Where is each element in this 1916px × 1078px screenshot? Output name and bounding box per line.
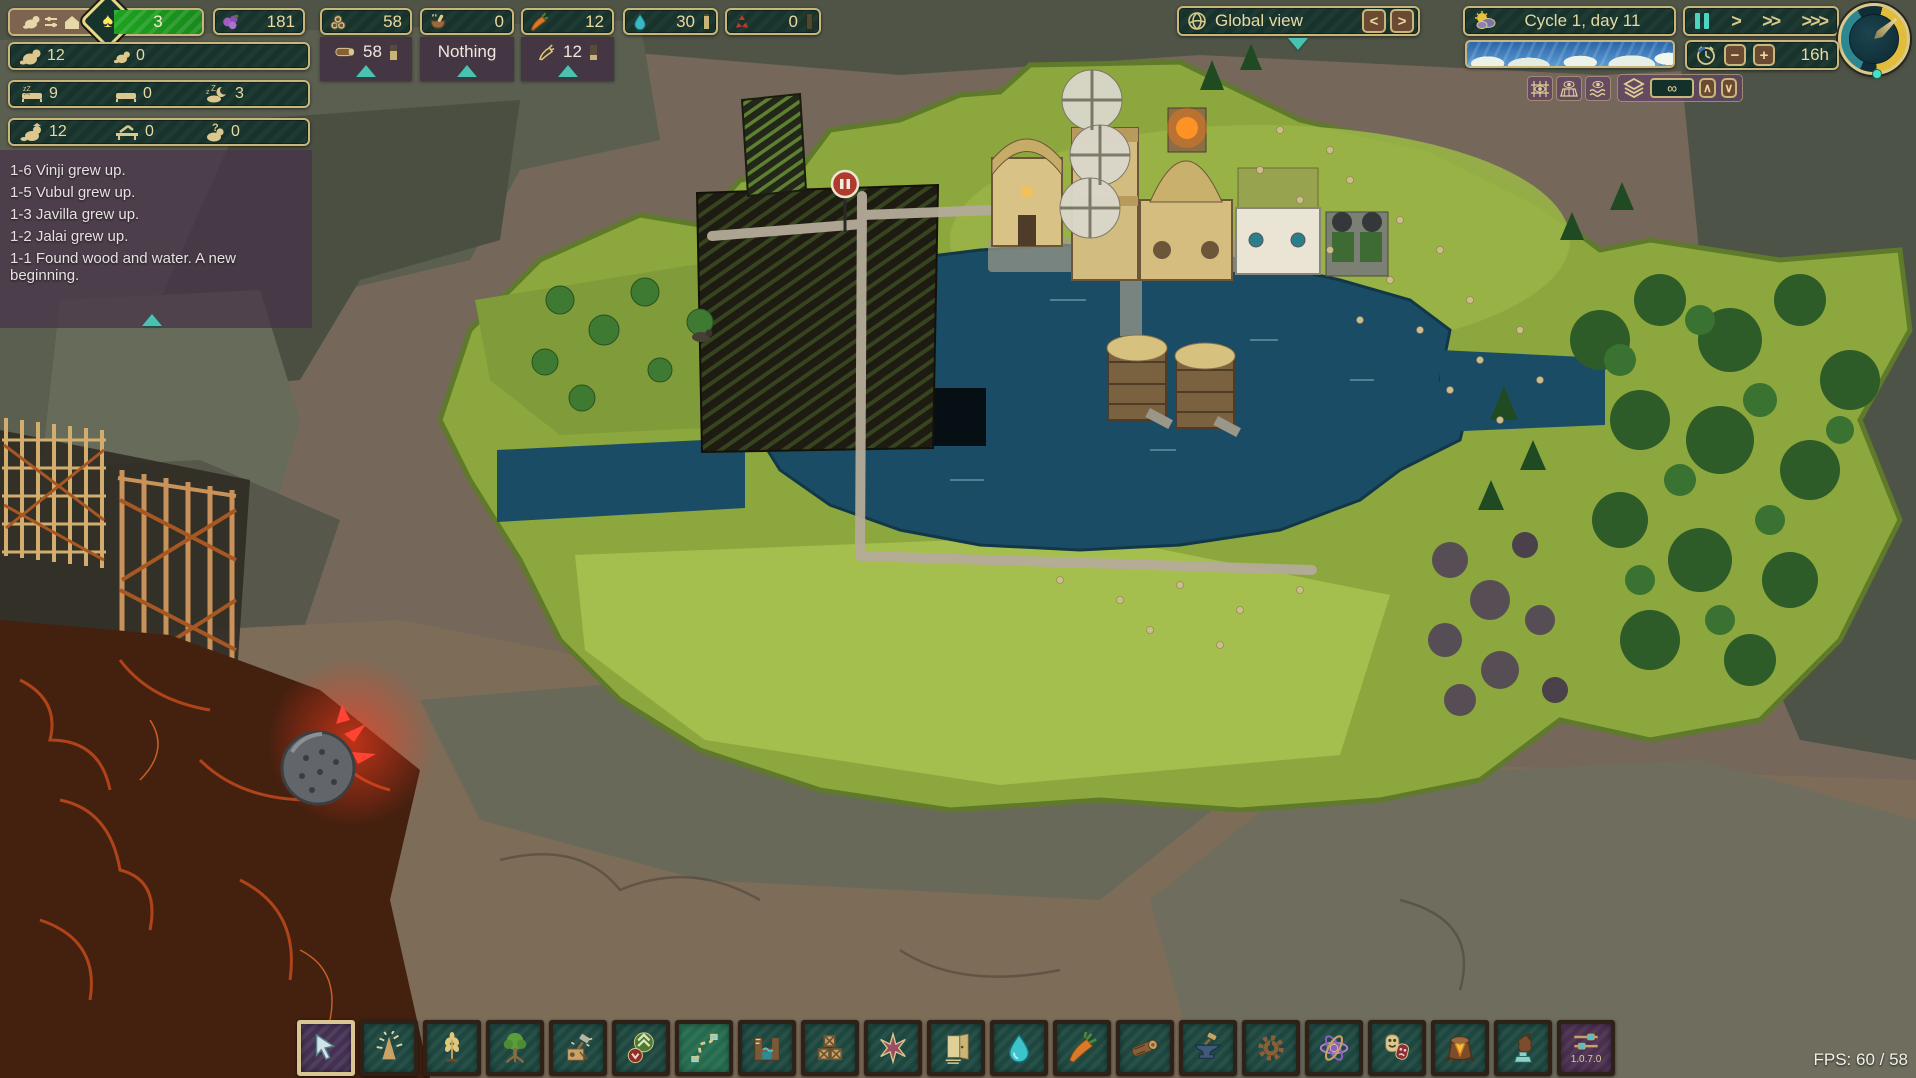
grid-eye-icon [1530,80,1550,98]
science-tool-button[interactable] [1305,1020,1363,1076]
globe-icon [1187,11,1207,31]
carrot-icon [1065,1031,1099,1065]
next-view-button[interactable]: > [1390,9,1414,33]
deep-water-hole [928,388,986,446]
housing-tool-button[interactable] [927,1020,985,1076]
forestry-tool-button[interactable] [486,1020,544,1076]
empty-bed-icon [114,84,138,104]
prev-view-button[interactable]: < [1362,9,1386,33]
hammer-house-icon [561,1031,595,1065]
open-door-icon [939,1031,973,1065]
version-label: 1.0.7.0 [1571,1054,1602,1065]
water-level-bar [703,13,710,30]
carrot-icon [529,12,549,32]
gear-icon [1254,1031,1288,1065]
food-detail-popup[interactable]: Nothing [420,37,514,81]
theater-masks-icon [1380,1031,1414,1065]
wellbeing-tool-button[interactable] [1368,1020,1426,1076]
pause-button[interactable] [1695,13,1709,29]
increase-hours-button[interactable]: + [1753,44,1775,66]
felled-tree-icon [372,1031,406,1065]
settings-version-button[interactable]: 1.0.7.0 [1557,1020,1615,1076]
layer-down-button[interactable]: ∨ [1721,78,1737,98]
food-production-tool-button[interactable] [1053,1020,1111,1076]
metal-production-tool-button[interactable] [1179,1020,1237,1076]
food-resource[interactable]: 0 [420,8,514,35]
beds-row[interactable]: zZ 9 0 zZ 3 [8,80,310,108]
science-resource[interactable]: 181 [213,8,305,35]
view-mode-label: Global view [1215,11,1303,31]
water-icon [631,13,649,31]
carrots-detail-popup[interactable]: 12 [521,37,614,81]
badwater-level-bar [806,13,813,30]
water-overlay-toggle[interactable] [1585,76,1611,101]
fast-button[interactable]: >> [1762,11,1779,32]
fastest-button[interactable]: >>> [1801,11,1827,32]
power-tool-button[interactable] [1242,1020,1300,1076]
priority-chevrons-icon [624,1031,658,1065]
badwater-resource[interactable]: 0 [725,8,821,35]
log-entry: 1-6 Vinji grew up. [10,162,302,179]
sleeping-outside-icon: zZ [204,84,230,104]
wellbeing-score-bar: 3 [114,10,202,34]
fps-counter: FPS: 60 / 58 [1814,1050,1909,1070]
play-button[interactable]: > [1731,11,1740,32]
decrease-hours-button[interactable]: − [1724,44,1746,66]
carrots-resource[interactable]: 12 [521,8,614,35]
grid-overlay-toggle[interactable] [1527,76,1553,101]
employed-beaver-icon [20,122,44,142]
water-structures-tool-button[interactable] [738,1020,796,1076]
dial-marker-icon [1872,69,1882,79]
landscaping-tool-button[interactable] [864,1020,922,1076]
wheat-icon [435,1031,469,1065]
population-row[interactable]: 12 0 [8,42,310,70]
terrain-overlay-toggle[interactable] [1556,76,1582,101]
unemployed-beaver-icon: ? [204,122,226,142]
collapse-arrow-icon[interactable] [356,65,376,77]
tree-stump-icon [1443,1031,1477,1065]
view-mode-panel[interactable]: Global view < > [1177,6,1420,36]
weather-sun-cloud-icon [1473,10,1499,32]
atom-icon [1317,1031,1351,1065]
logs-resource[interactable]: 58 [320,8,412,35]
path-route-icon [687,1031,721,1065]
paths-tool-button[interactable] [675,1020,733,1076]
work-hours-value: 16h [1801,45,1829,65]
district-panel[interactable]: ♠ 3 [8,8,204,36]
log-collapse-arrow-icon[interactable] [142,314,162,326]
monuments-tool-button[interactable] [1494,1020,1552,1076]
layer-selector[interactable]: ∞ ∧ ∨ [1617,74,1743,102]
log-icon [335,45,355,59]
collapse-arrow-icon[interactable] [457,65,477,77]
badwater-icon [733,13,751,31]
ruins-tool-button[interactable] [1431,1020,1489,1076]
wood-production-tool-button[interactable] [1116,1020,1174,1076]
map-eye-icon [1559,80,1579,98]
day-night-dial[interactable] [1838,3,1910,75]
beaver-statue-icon [1506,1031,1540,1065]
log-entry: 1-5 Vubul grew up. [10,184,302,201]
waves-eye-icon [1588,80,1608,98]
tree-cutting-tool-button[interactable] [360,1020,418,1076]
cursor-tool-button[interactable] [297,1020,355,1076]
svg-text:Z: Z [211,84,216,93]
water-drop-icon [1002,1031,1036,1065]
svg-text:zZ: zZ [23,86,32,93]
alarm-clock-icon [1695,44,1717,66]
carrot-icon [538,44,555,61]
storage-tool-button[interactable] [801,1020,859,1076]
wellbeing-icon: ♠ [103,10,114,33]
science-icon [221,12,241,32]
svg-text:z: z [206,89,210,96]
baby-beaver-icon [114,49,131,64]
furnace-fire [1176,117,1198,139]
jobs-row[interactable]: 12 0 ? 0 [8,118,310,146]
cycle-day-label: Cycle 1, day 11 [1499,11,1666,31]
build-toolbar: 1.0.7.0 [297,1020,1615,1076]
view-panel-collapse-icon[interactable] [1288,38,1308,50]
log-entry: 1-3 Javilla grew up. [10,206,302,223]
adult-beaver-icon [20,47,42,65]
log-icon [1128,1031,1162,1065]
work-hours-panel[interactable]: − + 16h [1685,40,1839,70]
windmill-rotors [1060,70,1130,238]
logs-detail-popup[interactable]: 58 [320,37,412,81]
anvil-icon [1191,1031,1225,1065]
weather-forecast-bar[interactable] [1465,40,1675,68]
layer-depth-value: ∞ [1650,78,1694,98]
water-supply-tool-button[interactable] [990,1020,1048,1076]
canal-icon [750,1031,784,1065]
collapse-arrow-icon[interactable] [558,65,578,77]
workplace-icon [114,122,140,142]
crops-tool-button[interactable] [423,1020,481,1076]
layer-up-button[interactable]: ∧ [1699,78,1715,98]
demolition-tool-button[interactable] [549,1020,607,1076]
crates-icon [813,1031,847,1065]
cursor-icon [317,1035,334,1060]
occupied-bed-icon: zZ [20,84,44,104]
food-icon [428,12,448,32]
cycle-day-panel: Cycle 1, day 11 [1463,6,1676,36]
priority-tool-button[interactable] [612,1020,670,1076]
water-resource[interactable]: 30 [623,8,718,35]
compass-star-icon [876,1031,910,1065]
logs-icon [328,12,348,32]
tree-icon [498,1031,532,1065]
sliders-icon [1571,1031,1601,1053]
metal-ruin[interactable] [267,657,437,827]
event-log[interactable]: 1-6 Vinji grew up. 1-5 Vubul grew up. 1-… [0,150,312,328]
layers-icon [1623,78,1645,98]
log-entry: 1-1 Found wood and water. A new beginnin… [10,250,302,284]
speed-controls[interactable]: > >> >>> [1683,6,1839,36]
log-entry: 1-2 Jalai grew up. [10,228,302,245]
game-screen: ♠ 3 181 58 0 12 30 0 58 Nothing [0,0,1916,1078]
